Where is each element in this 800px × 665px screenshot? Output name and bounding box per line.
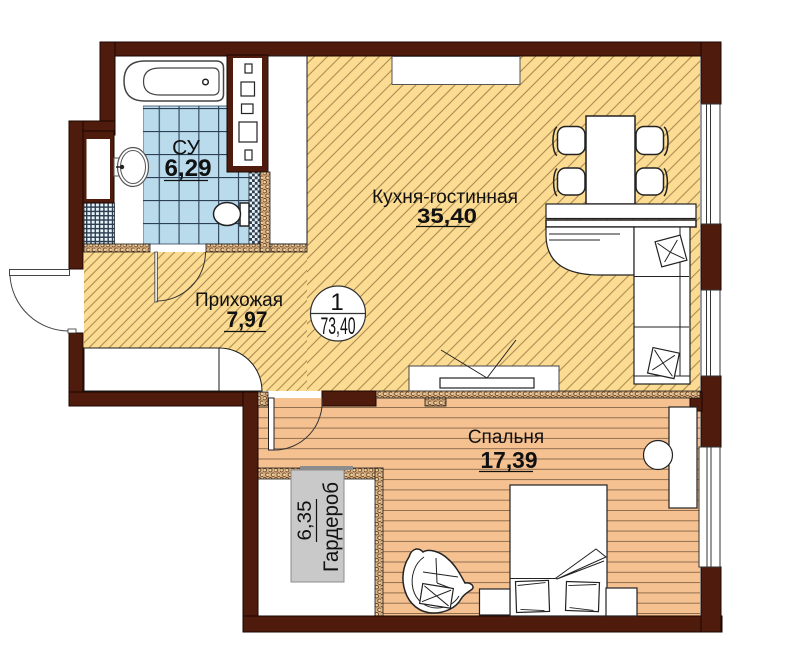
svg-text:Гардероб: Гардероб xyxy=(320,482,343,572)
svg-text:7,97: 7,97 xyxy=(227,307,268,332)
svg-text:6,35: 6,35 xyxy=(295,501,316,541)
svg-text:Спальня: Спальня xyxy=(468,427,544,448)
svg-text:1: 1 xyxy=(330,289,343,316)
svg-text:6,29: 6,29 xyxy=(165,155,212,182)
svg-text:17,39: 17,39 xyxy=(481,447,538,473)
svg-text:73,40: 73,40 xyxy=(321,313,356,340)
svg-text:35,40: 35,40 xyxy=(417,205,477,228)
